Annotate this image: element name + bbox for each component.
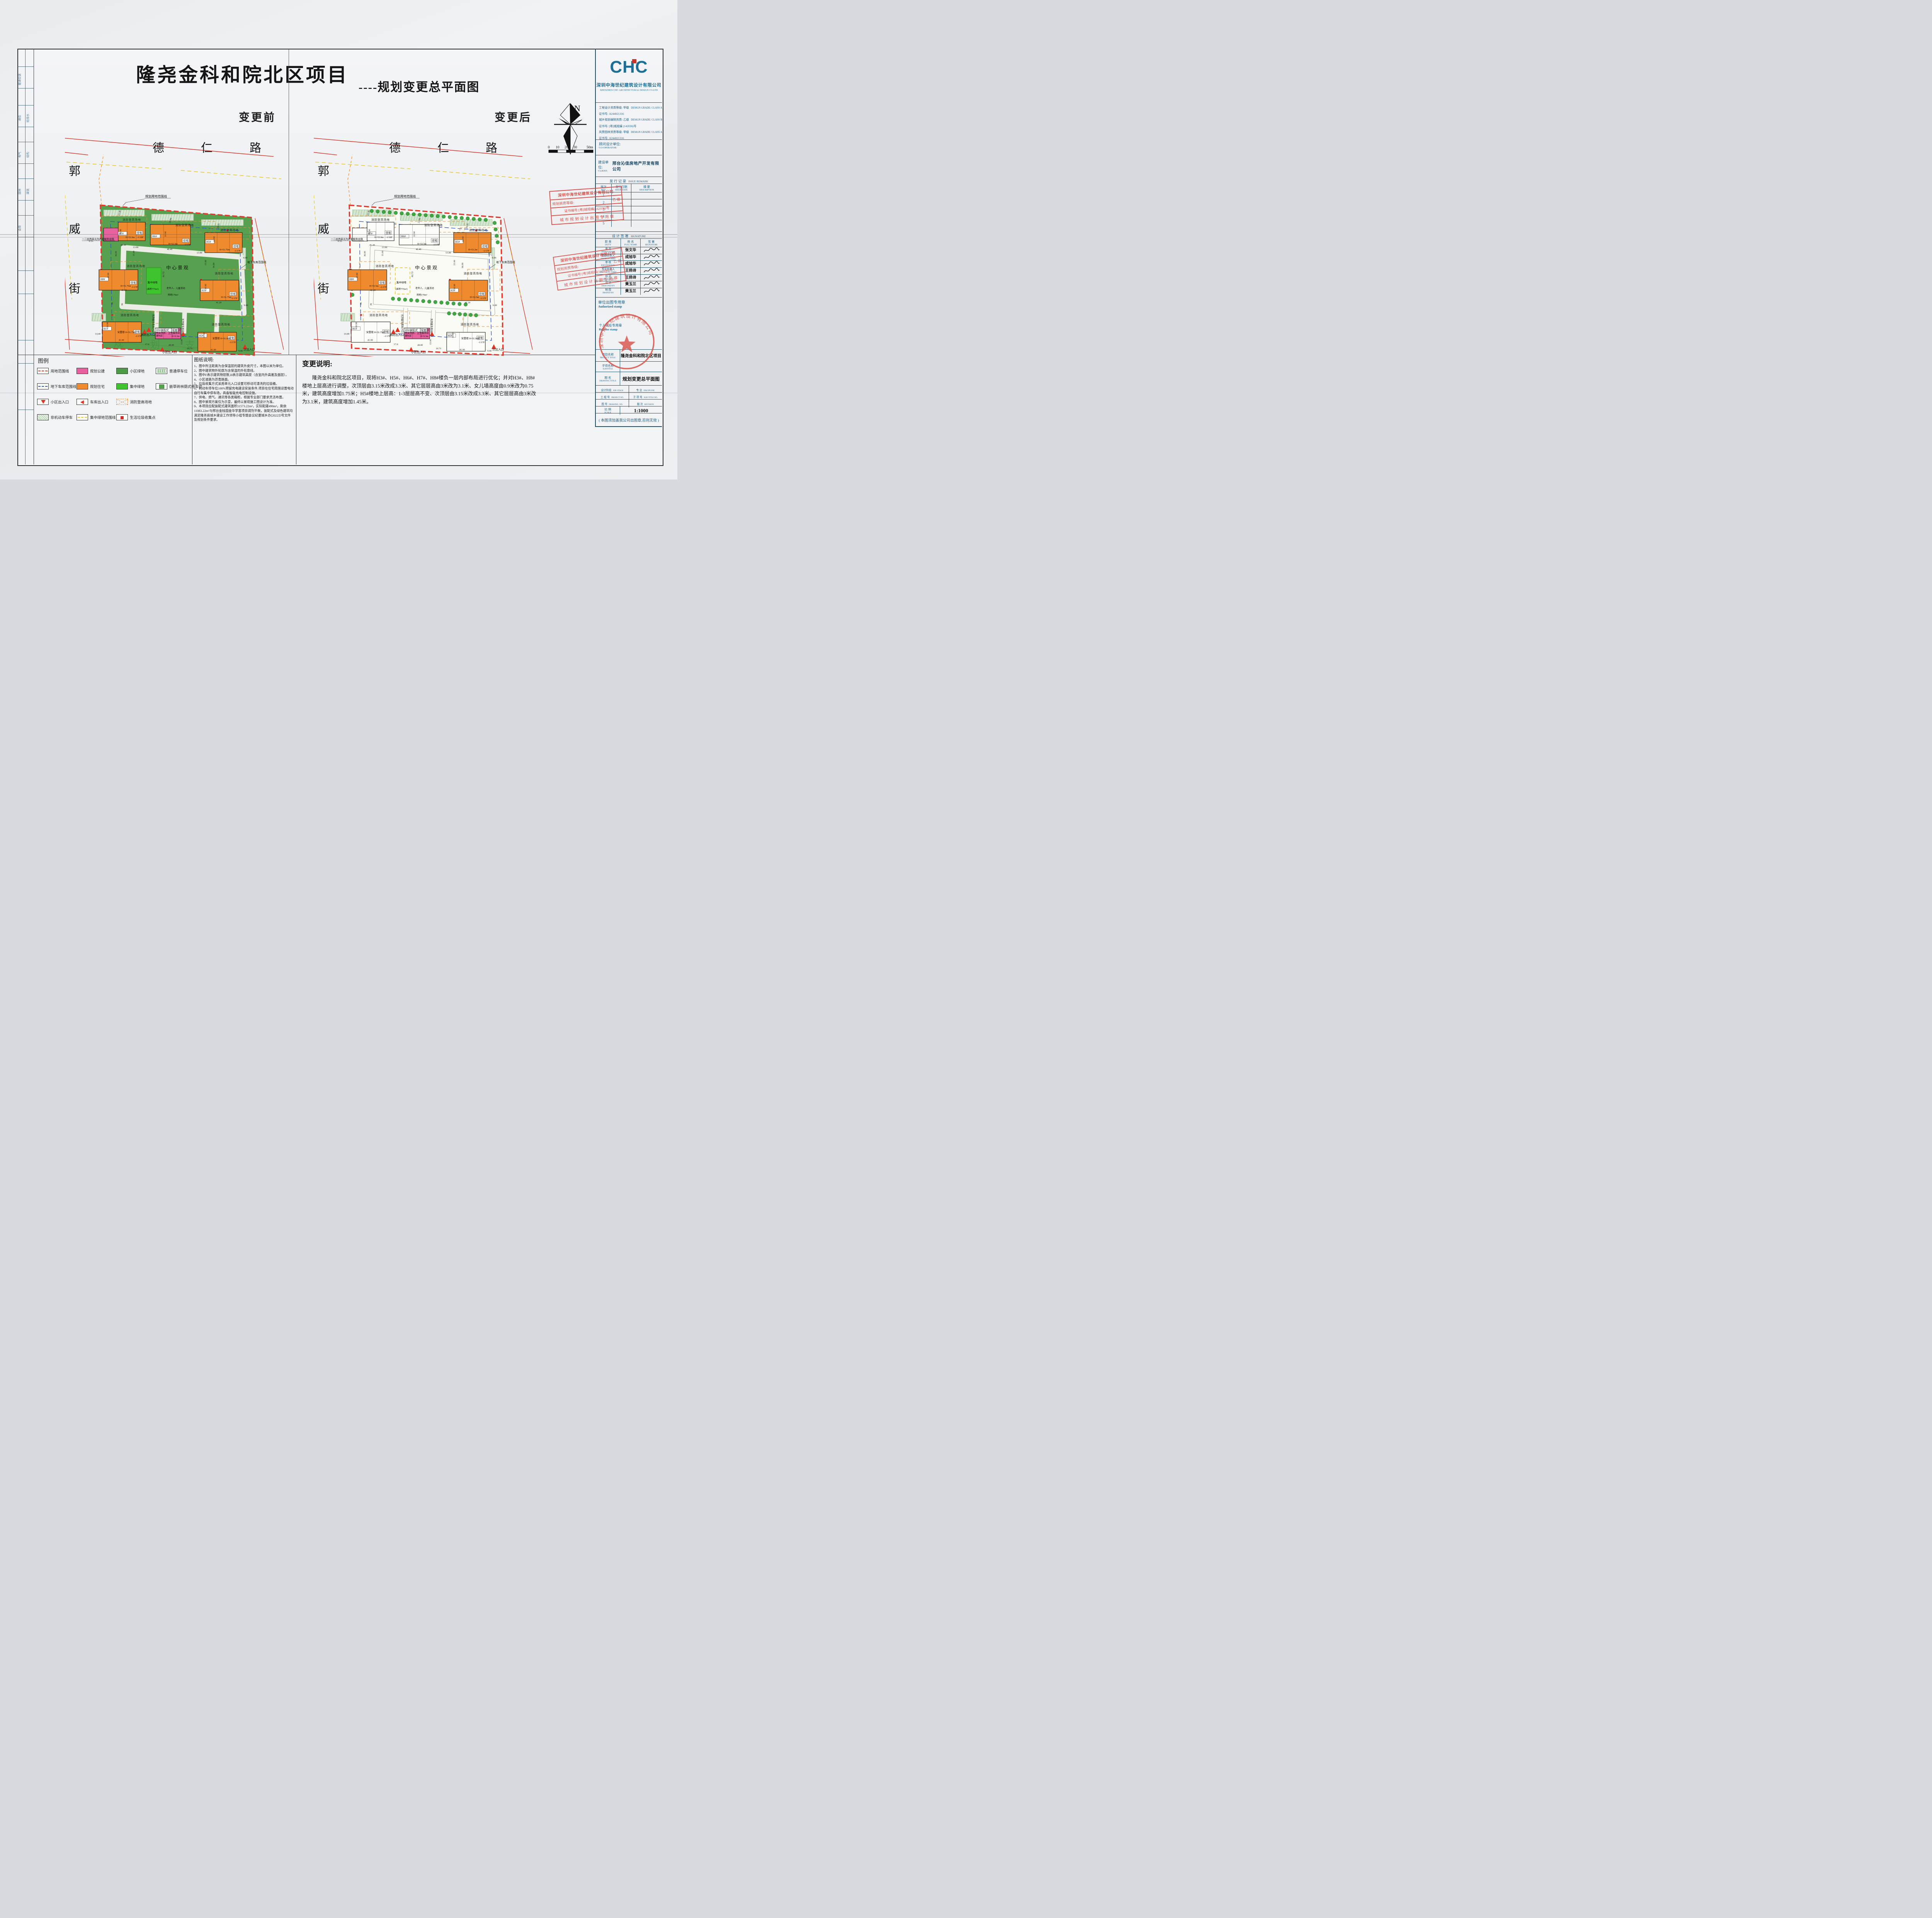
svg-text:住宅: 住宅 bbox=[233, 245, 239, 248]
svg-text:10.90: 10.90 bbox=[453, 284, 456, 289]
edge-strip-label: 建筑 bbox=[26, 184, 30, 199]
svg-text:消防登高场地: 消防登高场地 bbox=[469, 228, 488, 232]
qualification-row: 证书号: A244021316 bbox=[599, 111, 660, 117]
svg-text:36: 36 bbox=[360, 303, 362, 305]
svg-text:消防登高场地: 消防登高场地 bbox=[371, 218, 390, 221]
signature-scribble bbox=[643, 281, 660, 287]
svg-text:-1/17F: -1/17F bbox=[433, 243, 439, 246]
svg-text:消防登高场地: 消防登高场地 bbox=[121, 313, 139, 317]
svg-text:中心景观: 中心景观 bbox=[415, 265, 438, 270]
svg-text:41.00: 41.00 bbox=[459, 349, 465, 351]
svg-text:15.00: 15.00 bbox=[429, 339, 432, 345]
svg-text:H5#: H5# bbox=[455, 240, 460, 243]
svg-text:15.00: 15.00 bbox=[204, 260, 207, 265]
legend-symbol-green-line bbox=[77, 414, 88, 420]
legend-item: 地下车库范围线 bbox=[37, 383, 77, 389]
svg-text:H=53.2m: H=53.2m bbox=[468, 248, 478, 251]
road-label-top: 路 bbox=[250, 142, 261, 155]
svg-text:规划用地范围线: 规划用地范围线 bbox=[394, 194, 416, 198]
job-stage-label: 设计阶段 bbox=[601, 389, 611, 392]
svg-text:消防登高场地: 消防登高场地 bbox=[175, 223, 194, 227]
svg-text:H=53.5m: H=53.5m bbox=[369, 285, 379, 287]
edge-strip-label: 结构 bbox=[26, 147, 30, 163]
svg-text:H=53.5m: H=53.5m bbox=[168, 243, 178, 245]
svg-text:17.0: 17.0 bbox=[394, 343, 398, 346]
qualification-row: 证书号: [粤]城规编 (142036)号 bbox=[599, 123, 660, 129]
svg-text:集中绿地: 集中绿地 bbox=[396, 281, 406, 284]
svg-text:20: 20 bbox=[565, 146, 568, 150]
svg-text:50m: 50m bbox=[587, 146, 594, 150]
svg-text:(面积775m²): (面积775m²) bbox=[396, 287, 407, 291]
svg-text:H=51.75m: H=51.75m bbox=[121, 285, 131, 287]
client-section: 建设单位: CLIENT: 邢台沁佳房地产开发有限公司 bbox=[596, 155, 662, 177]
svg-text:19.71: 19.71 bbox=[436, 347, 441, 350]
chc-logo-red-square bbox=[632, 59, 636, 63]
legend-symbol-entry bbox=[37, 399, 49, 405]
svg-text:住宅: 住宅 bbox=[379, 281, 385, 284]
svg-text:住宅: 住宅 bbox=[131, 281, 136, 284]
issue-title-cn: 发 行 记 录 bbox=[610, 179, 626, 183]
svg-text:消防登高场地: 消防登高场地 bbox=[127, 264, 145, 268]
svg-text:36: 36 bbox=[370, 303, 372, 306]
svg-text:安置楼 H=51.75m: 安置楼 H=51.75m bbox=[366, 331, 384, 334]
svg-text:H9#装配式: H9#装配式 bbox=[156, 328, 169, 332]
counter-signature-strip: 暖通空调通信给排水电气结构园林建筑会签 bbox=[17, 49, 34, 464]
legend-symbol-residential bbox=[77, 383, 88, 389]
svg-text:-1/17F: -1/17F bbox=[131, 286, 138, 289]
svg-text:15.00: 15.00 bbox=[180, 339, 183, 345]
edge-strip-label: 给排水 bbox=[26, 111, 30, 126]
svg-text:H5#: H5# bbox=[206, 240, 211, 243]
svg-text:H=53.5m: H=53.5m bbox=[417, 243, 427, 245]
client-label-cn: 建设单位: bbox=[598, 160, 611, 170]
legend-item: 普通停车位 bbox=[156, 368, 188, 374]
signature-scribble bbox=[643, 275, 660, 281]
road-label-left: 街 bbox=[69, 282, 80, 295]
road-label-left: 街 bbox=[318, 282, 329, 295]
svg-text:82.72: 82.72 bbox=[162, 272, 165, 277]
svg-text:15.00: 15.00 bbox=[453, 260, 456, 265]
drawing-sheet: 暖通空调通信给排水电气结构园林建筑会签 隆尧金科和院北区项目 ----规划变更总… bbox=[0, 0, 677, 479]
svg-text:便利店: 便利店 bbox=[156, 334, 163, 337]
svg-text:物业用房、卫生服务站: 物业用房、卫生服务站 bbox=[405, 332, 429, 335]
svg-text:-1/17F: -1/17F bbox=[234, 250, 241, 252]
svg-text:13.00: 13.00 bbox=[133, 246, 138, 249]
svg-text:10: 10 bbox=[556, 146, 560, 150]
svg-text:消防登高场地: 消防登高场地 bbox=[215, 272, 233, 275]
svg-text:配套2F: 配套2F bbox=[172, 328, 180, 332]
legend-symbol-fire-site bbox=[116, 399, 128, 405]
svg-text:地下车库范围线: 地下车库范围线 bbox=[247, 260, 266, 264]
chc-logo: CHC bbox=[610, 59, 648, 76]
svg-text:-1/17F: -1/17F bbox=[483, 250, 490, 252]
svg-text:41.20: 41.20 bbox=[121, 244, 126, 247]
legend-item: 规划公建 bbox=[77, 368, 105, 374]
after-panel-label: 变更后 bbox=[495, 109, 532, 124]
cooperator-label-cn: 顾问设计单位: bbox=[599, 141, 659, 146]
legend-symbol-garage-line bbox=[37, 383, 49, 389]
signature-scribble bbox=[643, 268, 660, 274]
svg-text:10.90: 10.90 bbox=[119, 229, 122, 235]
legend-item: 小区绿地 bbox=[116, 368, 145, 374]
edge-strip-label: 通信 bbox=[18, 111, 22, 126]
svg-text:消防出入口: 消防出入口 bbox=[141, 333, 155, 337]
svg-text:消防登高场地: 消防登高场地 bbox=[424, 223, 443, 227]
legend-title: 图例 bbox=[38, 357, 49, 365]
signature-scribble bbox=[643, 288, 660, 294]
svg-text:9.00: 9.00 bbox=[244, 304, 248, 307]
road-label-top: 仁 bbox=[437, 142, 449, 155]
svg-text:41.20: 41.20 bbox=[370, 289, 376, 292]
svg-text:41.20: 41.20 bbox=[369, 244, 375, 247]
drawing-title-label: 图 名 bbox=[596, 376, 620, 380]
signature-scribble bbox=[643, 261, 660, 267]
svg-text:-1/17F: -1/17F bbox=[478, 341, 485, 344]
svg-text:41.20: 41.20 bbox=[465, 301, 470, 304]
svg-text:H=53.5m: H=53.5m bbox=[470, 296, 479, 299]
drawing-notes: 图纸说明: 1、图中所注距离为含保温层的建筑外皮尺寸，本图以米为单位。2、图中建… bbox=[194, 356, 294, 422]
note-item: 7、供电、燃气、通讯等各类箱柜，根据专业部门要求灵活布置。 bbox=[194, 395, 294, 400]
client-name: 邢台沁佳房地产开发有限公司 bbox=[612, 160, 660, 172]
legend-notes-divider bbox=[192, 355, 192, 464]
svg-text:36.00: 36.00 bbox=[364, 251, 366, 257]
svg-text:集中绿地: 集中绿地 bbox=[148, 281, 158, 284]
legend-item: 小区出入口 bbox=[37, 399, 69, 405]
svg-text:-1/17F: -1/17F bbox=[480, 297, 486, 300]
svg-text:H8#: H8# bbox=[349, 278, 354, 281]
authorized-label-cn: 单位出图专用章 bbox=[598, 299, 660, 305]
scale-bar: 010203050m bbox=[546, 145, 597, 155]
svg-text:消防登高场地: 消防登高场地 bbox=[369, 313, 388, 317]
legend-item: 规划住宅 bbox=[77, 383, 105, 389]
legend-symbol-parking bbox=[156, 368, 167, 374]
legend-symbol-parking-grass bbox=[156, 383, 167, 389]
legend-symbol-garage-entry bbox=[77, 399, 88, 405]
svg-text:H=51.75m: H=51.75m bbox=[221, 296, 231, 299]
svg-text:无顶盖车库出入口: 无顶盖车库出入口 bbox=[152, 314, 155, 333]
note-item: 3、图中F表示建筑物层数,H表示建筑高度（含室内外高差及面层）。 bbox=[194, 373, 294, 377]
svg-text:安置楼 H=51.90m: 安置楼 H=51.90m bbox=[213, 337, 231, 340]
svg-text:36.00: 36.00 bbox=[213, 263, 215, 268]
logo-section: CHC 深圳中海世纪建筑设计有限公司 SHENZHEN CHC ARCHITEC… bbox=[596, 49, 662, 103]
svg-text:老年人、儿童活动: 老年人、儿童活动 bbox=[415, 287, 434, 290]
note-item: 2、图中建筑物外轮廓为含保温的外轮廓线。 bbox=[194, 369, 294, 373]
svg-text:消防出入口: 消防出入口 bbox=[389, 333, 404, 337]
svg-text:14.40: 14.40 bbox=[95, 333, 100, 335]
svg-text:9.00: 9.00 bbox=[487, 350, 492, 352]
legend-item: 生活垃圾收集点 bbox=[116, 414, 156, 420]
issue-title-en: ISSUE REMARK bbox=[628, 180, 648, 183]
road-label-top: 德 bbox=[153, 142, 164, 155]
svg-text:安置楼 H=51.75m: 安置楼 H=51.75m bbox=[117, 331, 136, 334]
legend-symbol-central-green bbox=[116, 383, 128, 389]
svg-text:场地170m²: 场地170m² bbox=[168, 293, 179, 296]
change-description: 变更说明: 隆尧金科和院北区项目，现将H3#、H5#、H6#、H7#、H8#楼负… bbox=[302, 359, 537, 406]
company-name-en: SHENZHEN CHC ARCHITECTURAL DESIGN CO.LTD bbox=[596, 89, 662, 92]
svg-text:-1/17F: -1/17F bbox=[231, 297, 238, 300]
svg-text:老年人、儿童活动: 老年人、儿童活动 bbox=[167, 287, 185, 290]
legend-symbol-nonmotor bbox=[37, 414, 49, 420]
planning-qualification-stamp: 深圳中海世纪建筑设计有限公司 规划资质等级:乙 级 证书编号:[粤]城规编(14… bbox=[549, 186, 624, 225]
note-item: 4、小区道路为沥青路面。 bbox=[194, 377, 294, 382]
qualification-row: 风景园林资质等级: 甲级DESIGN GRADE: CLASS A bbox=[599, 129, 660, 135]
svg-text:配套2F: 配套2F bbox=[421, 328, 429, 332]
road-label-top: 德 bbox=[389, 142, 401, 155]
svg-text:41.00: 41.00 bbox=[367, 339, 373, 342]
revision-label: 版 次 bbox=[637, 403, 643, 406]
qualification-row: 城乡规划编制资质: 乙级DESIGN GRADE: CLASS B bbox=[599, 117, 660, 123]
road-label-left: 郭 bbox=[69, 165, 80, 178]
company-name-cn: 深圳中海世纪建筑设计有限公司 bbox=[596, 82, 662, 88]
svg-text:46.40: 46.40 bbox=[416, 248, 421, 251]
legend-symbol-waste bbox=[116, 414, 128, 420]
note-item: 8、图中景观方案仅为示意，最终以景观施工图设计为准。 bbox=[194, 400, 294, 405]
road-label-top: 路 bbox=[486, 142, 497, 155]
svg-text:9.00: 9.00 bbox=[243, 257, 247, 259]
svg-text:无顶盖车库出入口: 无顶盖车库出入口 bbox=[401, 314, 404, 333]
svg-text:规划用地范围线: 规划用地范围线 bbox=[145, 194, 167, 198]
site-plan-before: 德仁路郭威街规划支路H7#住宅-1/18FH=53.9mH6#住宅-1/17FH… bbox=[65, 133, 287, 357]
svg-text:17.0: 17.0 bbox=[145, 343, 149, 346]
legend-item: 集中绿地 bbox=[116, 383, 145, 389]
svg-text:地下车库范围线: 地下车库范围线 bbox=[496, 260, 515, 264]
change-title: 变更说明: bbox=[302, 359, 537, 369]
svg-text:住宅: 住宅 bbox=[230, 292, 236, 296]
signature-row: 制 图DRAFED BY 黄玉兰 bbox=[596, 288, 662, 295]
svg-text:41.00: 41.00 bbox=[119, 339, 124, 342]
note-item: 5、垃圾收集方式采用单元入口设置可移动可清洗的垃圾桶。 bbox=[194, 382, 294, 386]
svg-text:消防登高场地: 消防登高场地 bbox=[212, 323, 230, 326]
svg-text:H8#: H8# bbox=[100, 278, 105, 281]
scan-crease bbox=[0, 237, 677, 238]
svg-text:消防登高场地: 消防登高场地 bbox=[122, 218, 141, 221]
svg-text:10.90: 10.90 bbox=[203, 333, 206, 338]
legend-symbol-boundary bbox=[37, 368, 49, 374]
svg-text:10.90: 10.90 bbox=[356, 273, 359, 278]
svg-text:一二层西单元为养老服务设施: 一二层西单元为养老服务设施 bbox=[82, 237, 114, 241]
drawing-no-label: 图 号 bbox=[602, 403, 607, 406]
svg-text:H9#装配式: H9#装配式 bbox=[405, 328, 418, 332]
svg-text:消防登高场地: 消防登高场地 bbox=[376, 264, 394, 268]
cooperator-label-en: CO-OPERATOR: bbox=[599, 146, 659, 149]
svg-text:小区出入口: 小区出入口 bbox=[411, 350, 426, 354]
edge-strip-label: 会签 bbox=[18, 221, 22, 236]
scan-crease bbox=[0, 393, 677, 393]
legend-item: 用地范围线 bbox=[37, 368, 69, 374]
svg-text:10.90: 10.90 bbox=[368, 229, 371, 235]
subtitle-no-label: 子 项 号 bbox=[633, 396, 642, 399]
svg-text:住宅: 住宅 bbox=[482, 245, 488, 248]
svg-text:中心景观: 中心景观 bbox=[166, 265, 189, 270]
svg-text:便利店: 便利店 bbox=[405, 334, 412, 337]
scan-crease bbox=[0, 234, 677, 235]
svg-text:9.00: 9.00 bbox=[492, 257, 496, 259]
site-plan-after: 德仁路郭威街规划支路H7#住宅-1/18FH=53.9mH6#住宅-1/17FH… bbox=[314, 133, 536, 357]
client-label-en: CLIENT: bbox=[598, 170, 611, 172]
svg-text:-1/17F: -1/17F bbox=[380, 286, 387, 289]
svg-text:36: 36 bbox=[111, 303, 114, 305]
signature-scribble bbox=[643, 254, 660, 260]
svg-text:10.90: 10.90 bbox=[106, 322, 109, 328]
svg-text:-1/17F: -1/17F bbox=[230, 341, 236, 344]
legend-item: 消防登高场地 bbox=[116, 399, 152, 405]
svg-text:次出入口: 次出入口 bbox=[243, 347, 255, 351]
legend-symbol-area-green bbox=[116, 368, 128, 374]
legend-item: 车库出入口 bbox=[77, 399, 109, 405]
svg-text:-1/17F: -1/17F bbox=[184, 243, 190, 246]
svg-text:物业用房、卫生服务站: 物业用房、卫生服务站 bbox=[156, 332, 180, 335]
svg-text:36.00: 36.00 bbox=[461, 263, 464, 268]
legend-symbol-public bbox=[77, 368, 88, 374]
svg-text:28.00: 28.00 bbox=[417, 344, 423, 347]
page-subtitle: ----规划变更总平面图 bbox=[359, 77, 480, 95]
svg-text:场地170m²: 场地170m² bbox=[417, 293, 427, 296]
road-label-left: 郭 bbox=[318, 165, 329, 178]
svg-text:10.90: 10.90 bbox=[107, 273, 110, 278]
svg-text:H=51.75m: H=51.75m bbox=[219, 248, 230, 251]
before-panel-label: 变更前 bbox=[239, 109, 276, 124]
svg-text:消防登高场地: 消防登高场地 bbox=[464, 272, 482, 275]
notes-change-divider bbox=[296, 355, 296, 464]
svg-text:13.00: 13.00 bbox=[446, 252, 451, 254]
svg-text:9.00: 9.00 bbox=[493, 304, 497, 307]
svg-text:小区出入口: 小区出入口 bbox=[162, 350, 177, 354]
svg-text:19.71: 19.71 bbox=[187, 347, 192, 350]
svg-text:H=9.3m: H=9.3m bbox=[420, 335, 429, 338]
svg-text:10.90: 10.90 bbox=[355, 322, 358, 328]
svg-text:30: 30 bbox=[573, 146, 577, 150]
svg-text:36: 36 bbox=[121, 303, 124, 306]
svg-text:13.00: 13.00 bbox=[197, 252, 202, 254]
page-title: 隆尧金科和院北区项目 bbox=[136, 60, 349, 87]
svg-text:28.00: 28.00 bbox=[168, 344, 174, 347]
svg-text:41.20: 41.20 bbox=[216, 301, 221, 304]
svg-text:10.90: 10.90 bbox=[452, 333, 454, 338]
svg-text:13.00: 13.00 bbox=[382, 246, 387, 249]
svg-text:46.40: 46.40 bbox=[167, 248, 172, 251]
cooperator-section: 顾问设计单位: CO-OPERATOR: bbox=[596, 140, 662, 155]
edge-strip-label: 园林 bbox=[18, 184, 22, 199]
signature-scribble bbox=[643, 247, 660, 253]
qualification-section: 工程设计资质等级: 甲级DESIGN GRADE: CLASS A证书号: A2… bbox=[596, 103, 662, 140]
svg-text:次出入口: 次出入口 bbox=[492, 347, 504, 351]
edge-strip-label: 暖通空调 bbox=[18, 72, 22, 87]
svg-text:住宅: 住宅 bbox=[183, 239, 189, 242]
qualification-row: 工程设计资质等级: 甲级DESIGN GRADE: CLASS A bbox=[599, 105, 660, 111]
company-round-seal: 深圳中海世纪建筑设计有限公司 bbox=[593, 308, 661, 376]
legend-item: 集中绿地范围线 bbox=[77, 414, 116, 420]
note-item: 9、本项目应配装配式建筑面积11573.22m²，实际配建490m²，剩余110… bbox=[194, 404, 294, 422]
svg-text:消防登高场地: 消防登高场地 bbox=[220, 228, 239, 232]
svg-text:41.00: 41.00 bbox=[211, 349, 216, 351]
svg-text:0: 0 bbox=[548, 146, 550, 150]
svg-text:安置楼 H=51.90m: 安置楼 H=51.90m bbox=[461, 337, 480, 340]
svg-text:H=9.3m: H=9.3m bbox=[172, 335, 180, 338]
sheet-validity-note: ( 本图须加盖我公司出图章,否则无效 ) bbox=[596, 413, 662, 428]
svg-text:一二层西单元为养老服务设施: 一二层西单元为养老服务设施 bbox=[331, 237, 363, 241]
svg-text:住宅: 住宅 bbox=[432, 239, 437, 242]
note-item: 1、图中所注距离为含保温层的建筑外皮尺寸，本图以米为单位。 bbox=[194, 364, 294, 369]
change-body: 隆尧金科和院北区项目，现将H3#、H5#、H6#、H7#、H8#楼负一层内部布局… bbox=[302, 374, 537, 406]
legend-item: 非机动车停车 bbox=[37, 414, 73, 420]
notes-title: 图纸说明: bbox=[194, 356, 294, 363]
svg-text:9.00: 9.00 bbox=[238, 350, 243, 352]
svg-text:15.00: 15.00 bbox=[381, 251, 384, 256]
svg-text:15.00: 15.00 bbox=[133, 251, 135, 256]
svg-text:14.40: 14.40 bbox=[344, 333, 349, 335]
svg-text:住宅: 住宅 bbox=[479, 292, 485, 296]
edge-strip-label: 电气 bbox=[18, 147, 22, 163]
svg-text:41.20: 41.20 bbox=[121, 289, 127, 292]
scale-label: 比 例 bbox=[596, 407, 620, 411]
project-no-label: 工 程 号 bbox=[600, 396, 610, 399]
road-label-top: 仁 bbox=[201, 142, 213, 155]
panel-divider bbox=[289, 49, 289, 355]
svg-text:10.90: 10.90 bbox=[204, 284, 207, 289]
discipline-label: 专 业 bbox=[636, 389, 642, 392]
note-item: 6、机动车停车位100%预留充电建设安装条件,项目在住宅周围设置电动自行车集中停… bbox=[194, 386, 294, 395]
svg-text:(面积775m²): (面积775m²) bbox=[147, 287, 158, 291]
svg-text:36.00: 36.00 bbox=[115, 251, 117, 257]
svg-text:82.72: 82.72 bbox=[411, 272, 414, 277]
svg-text:消防登高场地: 消防登高场地 bbox=[461, 323, 479, 326]
